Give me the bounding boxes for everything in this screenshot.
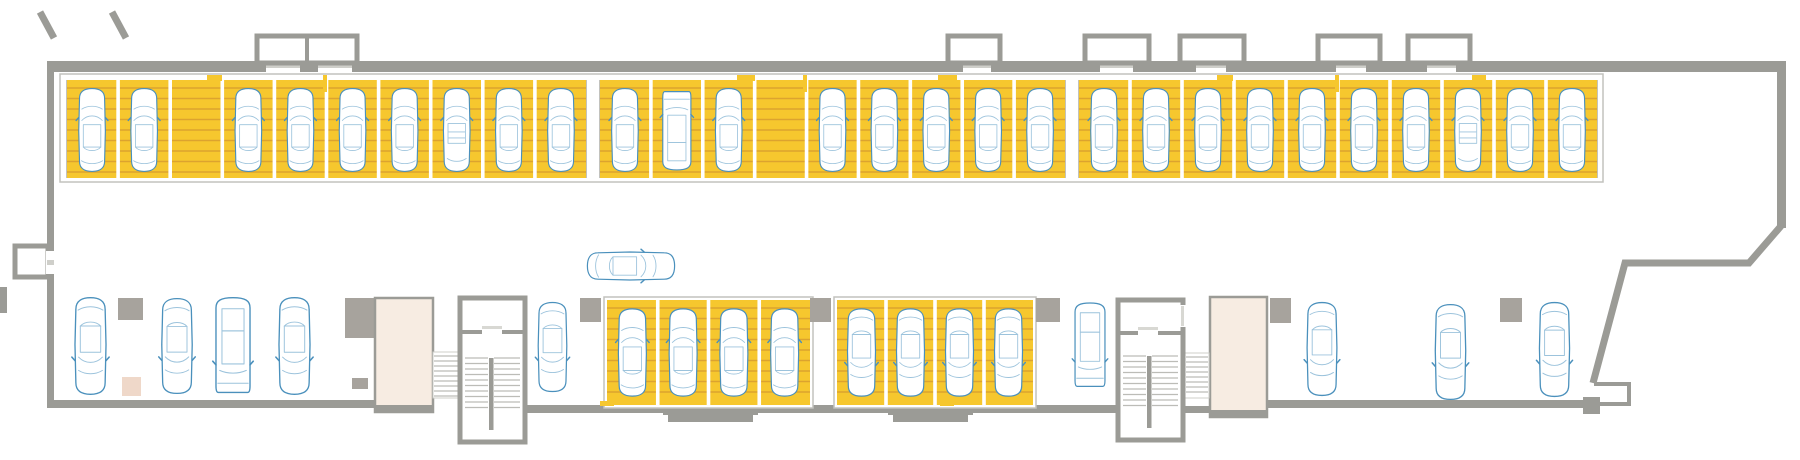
vehicle-car (72, 298, 109, 395)
vehicle-car (76, 89, 108, 172)
wall-step (888, 408, 973, 415)
stair-center-wall (489, 358, 494, 430)
stall-divider (909, 80, 913, 178)
light-well-bay (1318, 36, 1380, 63)
light-well-bay (1408, 36, 1470, 63)
stall-divider (377, 80, 381, 178)
stall-divider (273, 80, 277, 178)
light-well-bay (1180, 36, 1244, 63)
left-exterior-wall (47, 274, 54, 406)
vehicle-car (1400, 89, 1432, 172)
stall-divider (325, 80, 329, 178)
vehicle-car (337, 89, 369, 172)
vehicle-car (713, 89, 745, 172)
wall-step (663, 408, 758, 415)
yellow-tick (803, 75, 807, 92)
vehicle-car (920, 89, 952, 172)
yellow-tick (1335, 75, 1339, 92)
stall-divider (649, 80, 653, 178)
stall-divider (116, 80, 120, 178)
vehicle-car (666, 309, 700, 396)
stall-divider (1128, 80, 1132, 178)
stall-divider (1284, 80, 1288, 178)
stall-divider (1440, 80, 1444, 178)
vehicle-car (159, 299, 196, 394)
stall-divider (1388, 80, 1392, 178)
bottom-exterior-wall (1267, 400, 1587, 408)
vehicle-car (768, 309, 802, 396)
vehicle-car (493, 89, 525, 172)
stall-divider (656, 300, 660, 405)
vehicle-car (992, 309, 1026, 396)
yellow-tab (1217, 75, 1233, 81)
vehicle-car (1024, 89, 1056, 172)
yellow-tab (940, 401, 954, 406)
yellow-tab (737, 75, 755, 81)
elevator-shaft (375, 298, 433, 412)
stair-flight (1185, 353, 1209, 398)
vehicle-van (660, 92, 693, 170)
stall-divider (757, 300, 761, 405)
stall-divider (221, 80, 225, 178)
yellow-tick (323, 75, 327, 92)
stall-divider (884, 300, 888, 405)
vehicle-car (1304, 303, 1340, 396)
stall-divider (933, 300, 937, 405)
vehicle-car (1244, 89, 1276, 172)
shaft-block (122, 377, 141, 396)
vehicle-car (1348, 89, 1380, 172)
stall-divider (1336, 80, 1340, 178)
vehicle-car (717, 309, 751, 396)
stall-divider (857, 80, 861, 178)
vehicle-car (389, 89, 421, 172)
structural-column (1036, 298, 1060, 322)
door-leaf (482, 326, 502, 329)
vehicle-car (276, 298, 313, 395)
vehicle-van (213, 298, 253, 393)
vehicle-car (972, 89, 1004, 172)
vehicle-car (1536, 303, 1572, 397)
vehicle-car (1088, 89, 1120, 172)
stall-divider (960, 80, 964, 178)
stall-divider (753, 80, 757, 178)
vehicle-car (616, 309, 650, 396)
vehicle-cabrio (441, 89, 473, 172)
stall-divider (1232, 80, 1236, 178)
yellow-tab (207, 75, 222, 81)
vehicle-car (943, 309, 977, 396)
left-exterior-wall (47, 61, 54, 252)
stall-divider (701, 80, 705, 178)
yellow-tab (600, 401, 614, 406)
door-opening (1138, 330, 1158, 336)
vehicle-car (1140, 89, 1172, 172)
stall-divider (168, 80, 172, 178)
vehicle-car (609, 89, 641, 172)
vehicle-car (1504, 89, 1536, 172)
yellow-tab (938, 75, 957, 81)
vehicle-van (1072, 303, 1108, 386)
vehicle-car (128, 89, 160, 172)
vehicle-car (817, 89, 849, 172)
bottom-exterior-wall (47, 400, 377, 408)
stall-divider (429, 80, 433, 178)
door-leaf (1181, 306, 1184, 326)
elevator-shaft (1210, 297, 1267, 417)
right-exterior-wall (1777, 61, 1786, 228)
vehicle-car (894, 309, 928, 396)
vehicle-car (545, 89, 577, 172)
structural-column (118, 298, 143, 320)
stall-divider (982, 300, 986, 405)
wall-stub (0, 287, 7, 313)
vehicle-car (284, 89, 316, 172)
vehicle-car (1296, 89, 1328, 172)
structural-column (1500, 298, 1522, 322)
yellow-tab (1472, 75, 1486, 81)
stall-divider (481, 80, 485, 178)
stall-divider (805, 80, 809, 178)
stall-divider (707, 300, 711, 405)
angled-boundary-wall (1593, 226, 1781, 383)
stall-divider (1180, 80, 1184, 178)
vehicle-car (1432, 305, 1469, 400)
door-leaf (1138, 327, 1158, 330)
vehicle-car (1556, 89, 1588, 172)
vehicle-car (868, 89, 900, 172)
vehicle-car (535, 302, 569, 391)
aisle-driving-vehicle (587, 249, 674, 283)
door-opening (482, 329, 502, 335)
bottom-exterior-wall (1183, 406, 1210, 413)
structural-column (1270, 298, 1291, 323)
light-well-bay (1085, 36, 1149, 63)
vehicles-layer (72, 89, 1588, 400)
stall-divider (533, 80, 537, 178)
vehicle-car (845, 309, 879, 396)
vehicle-car (232, 89, 264, 172)
vehicle-cabrio (1452, 89, 1484, 172)
structural-column (345, 298, 375, 338)
wall-step (893, 415, 968, 422)
vehicle-car (1192, 89, 1224, 172)
window-bay (15, 246, 48, 277)
wall-end-block (1583, 397, 1600, 414)
wall-step (668, 415, 753, 422)
parking-garage-floor-plan (0, 0, 1800, 460)
structural-column (810, 298, 831, 322)
stall-divider (1012, 80, 1016, 178)
light-well-bay (948, 36, 1000, 63)
stall-divider (1492, 80, 1496, 178)
structural-column (580, 298, 601, 322)
floor-plan-svg (0, 0, 1800, 460)
stall-divider (1544, 80, 1548, 178)
stair-center-wall (1147, 356, 1152, 428)
structural-column (352, 378, 368, 389)
